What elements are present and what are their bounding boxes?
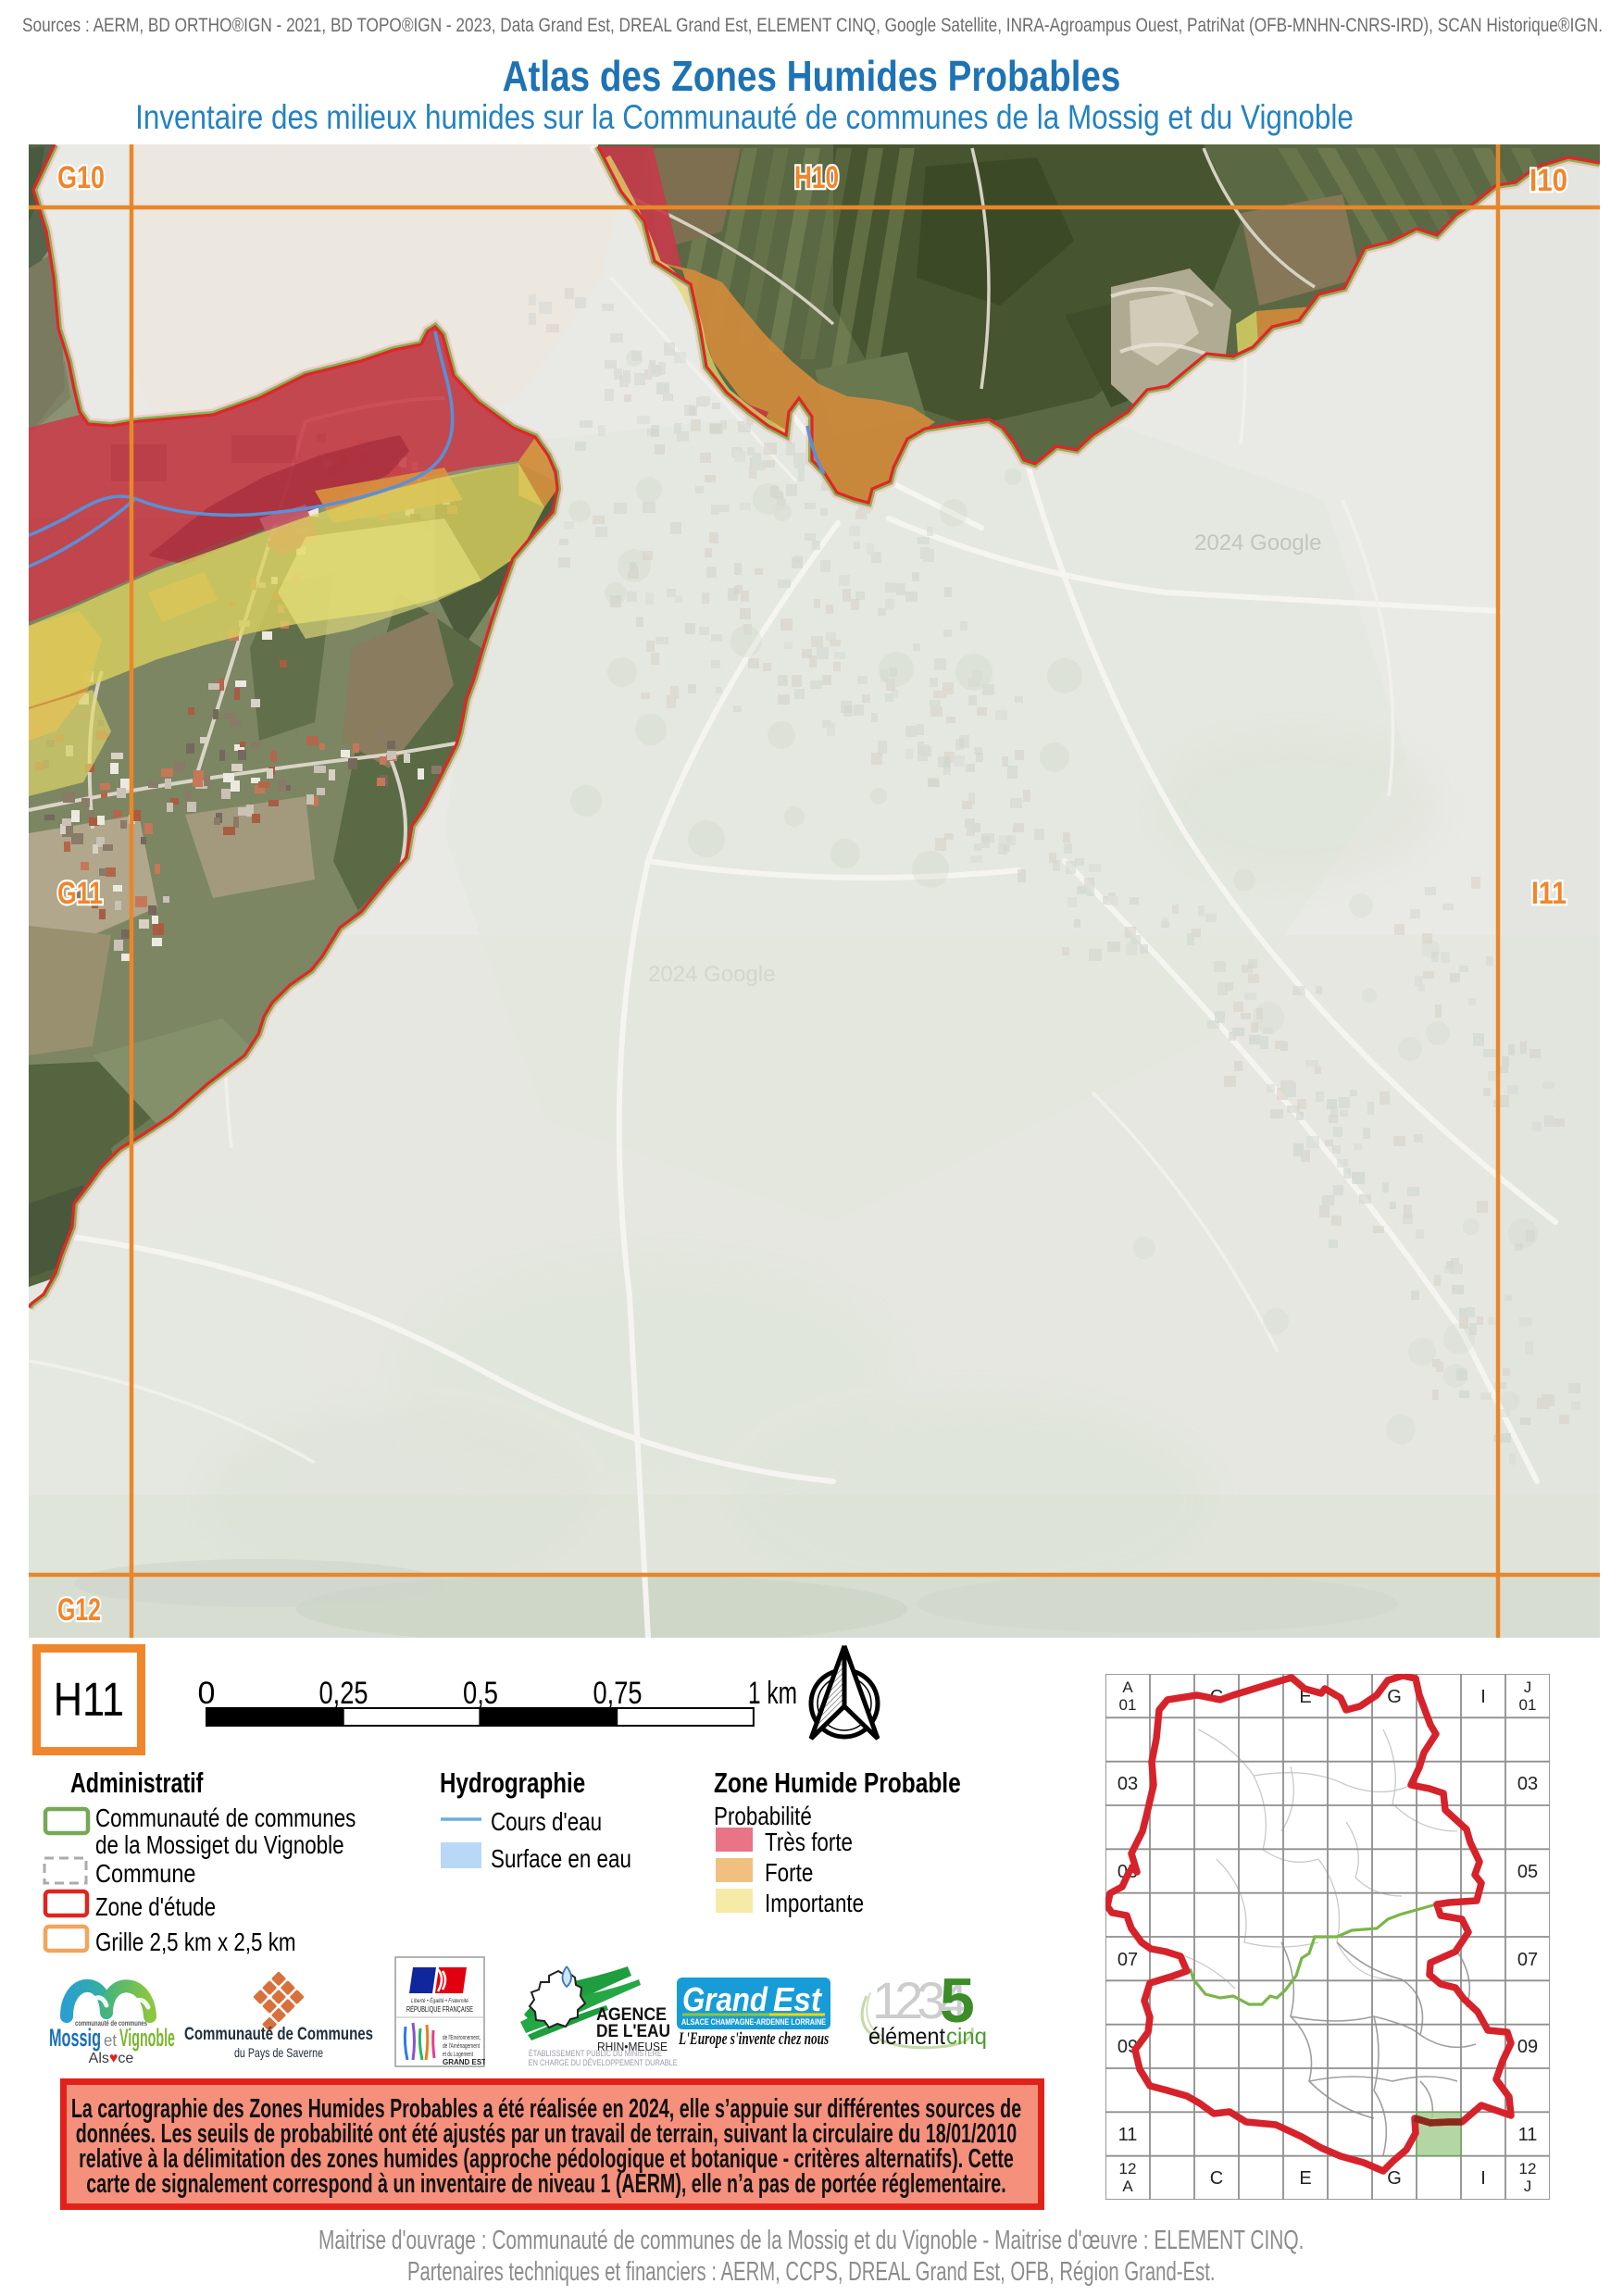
svg-text:12: 12 [1519,2160,1537,2177]
svg-text:ALSACE CHAMPAGNE-ARDENNE LORRA: ALSACE CHAMPAGNE-ARDENNE LORRAINE [681,2017,826,2028]
svg-text:élément: élément [868,2024,945,2050]
svg-text:0,75: 0,75 [593,1676,643,1711]
svg-text:Liberté • Égalité • Fraternité: Liberté • Égalité • Fraternité [411,1996,468,2004]
svg-text:GRAND EST: GRAND EST [443,2058,485,2066]
svg-text:du Pays de Saverne: du Pays de Saverne [234,2045,323,2060]
svg-text:G11: G11 [57,876,103,911]
svg-text:12: 12 [1119,2160,1137,2177]
svg-text:et: et [104,2031,117,2050]
svg-text:1 km: 1 km [748,1676,797,1711]
svg-text:et du Logement: et du Logement [443,2050,474,2058]
svg-text:Grand: Grand [682,1980,768,2018]
svg-text:G: G [1387,1687,1402,1707]
svg-text:I: I [1480,2168,1486,2189]
svg-text:05: 05 [1517,1862,1538,1882]
svg-text:I11: I11 [1531,876,1567,911]
svg-text:A: A [1122,1678,1133,1696]
svg-text:I10: I10 [1529,163,1567,198]
svg-text:11: 11 [1118,2125,1138,2145]
svg-text:H10: H10 [794,160,839,195]
svg-text:Vignoble: Vignoble [119,2024,175,2052]
svg-text:Communauté de Communes: Communauté de Communes [184,2025,373,2044]
svg-text:03: 03 [1117,1774,1138,1794]
svg-text:de l'Aménagement: de l'Aménagement [443,2041,481,2050]
svg-text:0: 0 [198,1676,216,1711]
svg-text:0,25: 0,25 [319,1676,368,1711]
svg-text:G10: G10 [57,160,105,195]
svg-text:E: E [1299,2168,1311,2189]
svg-text:J: J [1524,2177,1532,2195]
svg-text:A: A [1122,2177,1133,2195]
svg-text:G12: G12 [57,1592,101,1628]
svg-text:11: 11 [1518,2125,1538,2145]
svg-text:01: 01 [1519,1696,1537,1714]
svg-text:Est: Est [773,1980,823,2018]
svg-text:09: 09 [1517,2037,1538,2057]
svg-text:J: J [1524,1678,1532,1696]
svg-text:07: 07 [1517,1950,1538,1970]
svg-text:Mossig: Mossig [49,2024,101,2052]
svg-text:0,5: 0,5 [463,1676,498,1711]
svg-text:DE L'EAU: DE L'EAU [596,2022,670,2041]
svg-text:2024 Google: 2024 Google [1194,530,1321,555]
svg-text:01: 01 [1119,1696,1137,1714]
svg-text:G: G [1387,2168,1402,2189]
svg-text:03: 03 [1517,1774,1538,1794]
svg-text:cinq: cinq [946,2024,987,2050]
svg-text:Als♥ce: Als♥ce [89,2051,134,2066]
svg-text:I: I [1480,1687,1486,1707]
svg-text:07: 07 [1117,1950,1138,1970]
svg-text:2024 Google: 2024 Google [648,962,775,987]
svg-text:RÉPUBLIQUE FRANÇAISE: RÉPUBLIQUE FRANÇAISE [406,2005,473,2014]
svg-text:C: C [1210,2168,1223,2189]
svg-text:de l'Environnement,: de l'Environnement, [443,2033,481,2041]
